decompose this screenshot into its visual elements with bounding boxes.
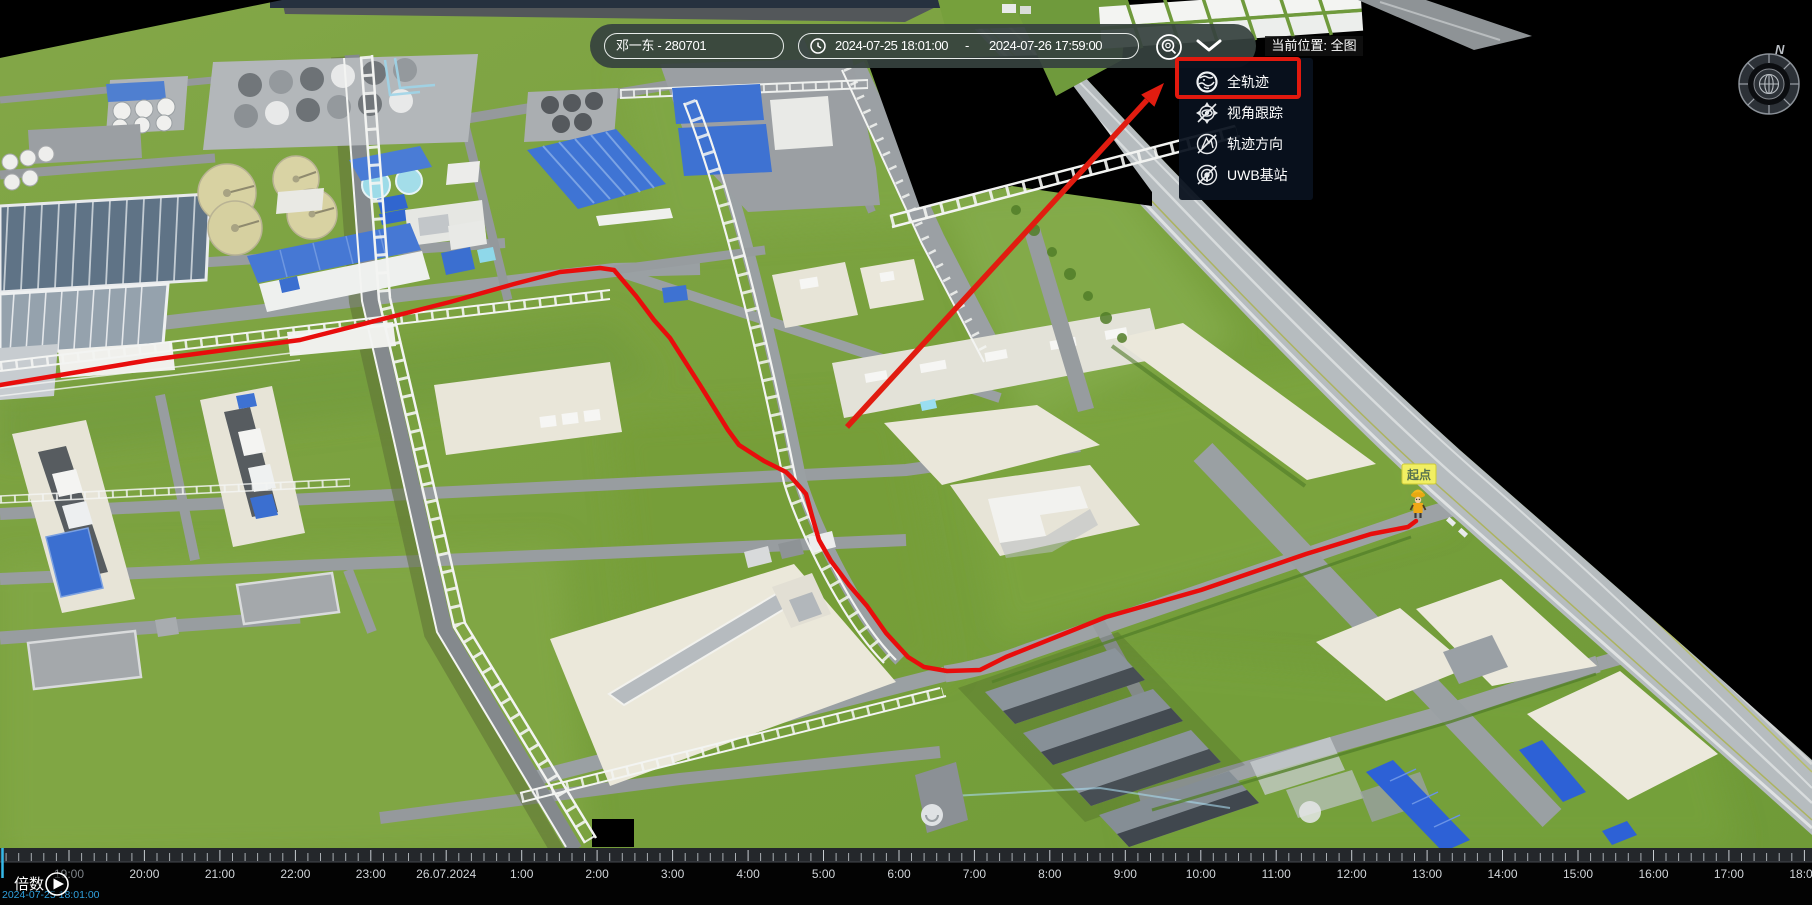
svg-text:1:00: 1:00 bbox=[510, 867, 534, 881]
svg-text:7:00: 7:00 bbox=[963, 867, 987, 881]
svg-text:3:00: 3:00 bbox=[661, 867, 685, 881]
svg-text:26.07.2024: 26.07.2024 bbox=[416, 867, 476, 881]
svg-text:21:00: 21:00 bbox=[205, 867, 235, 881]
svg-text:10:00: 10:00 bbox=[1186, 867, 1216, 881]
svg-text:UWB基站: UWB基站 bbox=[1227, 167, 1288, 183]
svg-text:15:00: 15:00 bbox=[1563, 867, 1593, 881]
svg-text:9:00: 9:00 bbox=[1114, 867, 1138, 881]
svg-text:20:00: 20:00 bbox=[129, 867, 159, 881]
svg-text:12:00: 12:00 bbox=[1337, 867, 1367, 881]
svg-text:起点: 起点 bbox=[1406, 467, 1431, 482]
svg-text:2:00: 2:00 bbox=[585, 867, 609, 881]
svg-text:16:00: 16:00 bbox=[1638, 867, 1668, 881]
svg-text:18:00: 18:00 bbox=[1789, 867, 1812, 881]
svg-text:4:00: 4:00 bbox=[736, 867, 760, 881]
svg-text:13:00: 13:00 bbox=[1412, 867, 1442, 881]
svg-text:8:00: 8:00 bbox=[1038, 867, 1062, 881]
svg-text:轨迹方向: 轨迹方向 bbox=[1227, 136, 1283, 152]
svg-text:14:00: 14:00 bbox=[1487, 867, 1517, 881]
svg-text:23:00: 23:00 bbox=[356, 867, 386, 881]
svg-text:17:00: 17:00 bbox=[1714, 867, 1744, 881]
svg-text:视角跟踪: 视角跟踪 bbox=[1227, 105, 1283, 121]
svg-text:11:00: 11:00 bbox=[1262, 867, 1291, 881]
svg-text:6:00: 6:00 bbox=[887, 867, 911, 881]
svg-text:5:00: 5:00 bbox=[812, 867, 836, 881]
svg-text:22:00: 22:00 bbox=[280, 867, 310, 881]
